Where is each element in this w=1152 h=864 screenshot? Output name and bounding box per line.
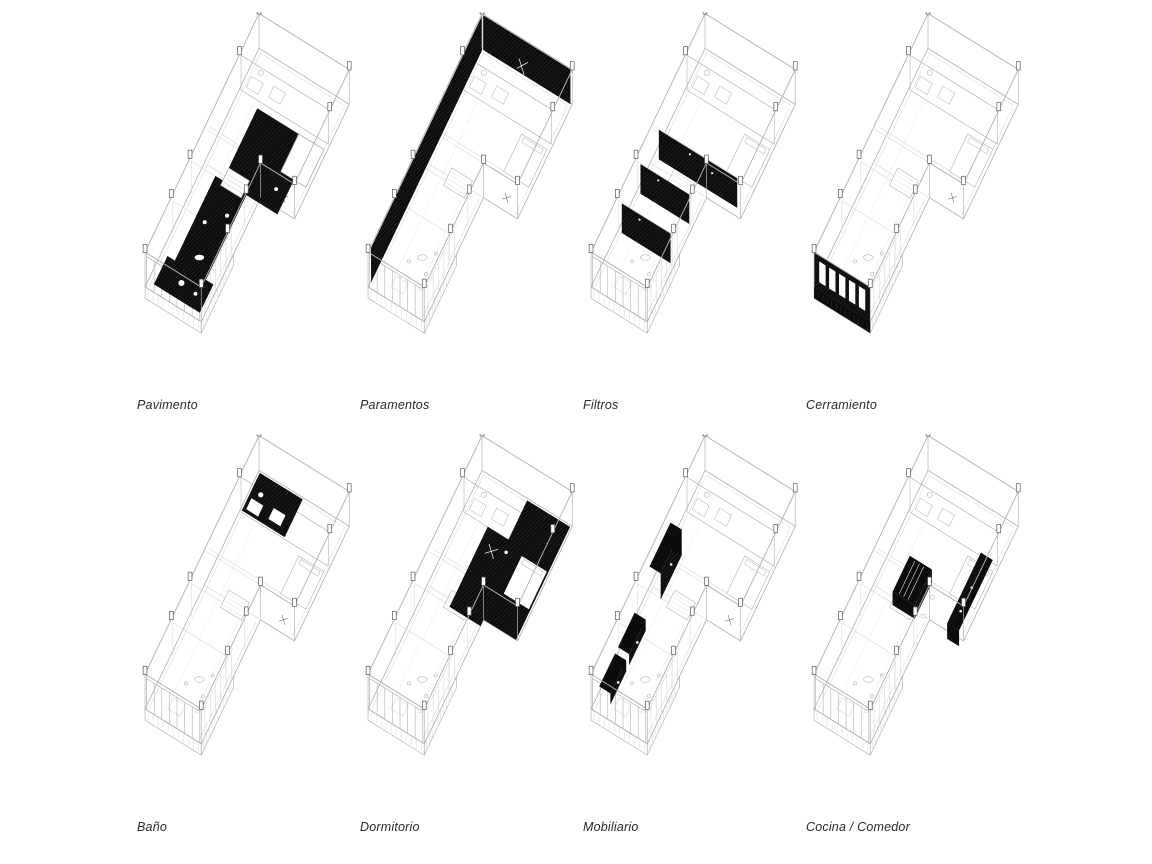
figure-label-cocina-comedor: Cocina / Comedor (806, 820, 1023, 837)
axon-svg-filtros (577, 12, 800, 360)
figure-label-mobiliario: Mobiliario (583, 820, 800, 837)
figure-label-cerramiento: Cerramiento (806, 398, 1023, 415)
drawing-sheet: Pavimento Paramentos Filtros Cerramiento… (0, 0, 1152, 864)
figure-filtros: Filtros (577, 12, 800, 415)
axon-svg-cocina-comedor (800, 434, 1023, 782)
axon-drawing-dormitorio (354, 434, 577, 782)
axon-svg-mobiliario (577, 434, 800, 782)
axon-svg-paramentos (354, 12, 577, 360)
figure-label-paramentos: Paramentos (360, 398, 577, 415)
axon-drawing-cerramiento (800, 12, 1023, 360)
figure-label-bano: Baño (137, 820, 354, 837)
figure-dormitorio: Dormitorio (354, 434, 577, 837)
figure-grid: Pavimento Paramentos Filtros Cerramiento… (131, 12, 1023, 837)
axon-svg-pavimento (131, 12, 354, 360)
axon-svg-dormitorio (354, 434, 577, 782)
axon-svg-bano (131, 434, 354, 782)
figure-label-filtros: Filtros (583, 398, 800, 415)
axon-drawing-paramentos (354, 12, 577, 360)
axon-drawing-pavimento (131, 12, 354, 360)
axon-drawing-cocina-comedor (800, 434, 1023, 782)
figure-bano: Baño (131, 434, 354, 837)
axon-drawing-filtros (577, 12, 800, 360)
axon-drawing-mobiliario (577, 434, 800, 782)
figure-paramentos: Paramentos (354, 12, 577, 415)
figure-label-pavimento: Pavimento (137, 398, 354, 415)
figure-label-dormitorio: Dormitorio (360, 820, 577, 837)
figure-pavimento: Pavimento (131, 12, 354, 415)
figure-mobiliario: Mobiliario (577, 434, 800, 837)
figure-cocina-comedor: Cocina / Comedor (800, 434, 1023, 837)
axon-svg-cerramiento (800, 12, 1023, 360)
figure-cerramiento: Cerramiento (800, 12, 1023, 415)
axon-drawing-bano (131, 434, 354, 782)
